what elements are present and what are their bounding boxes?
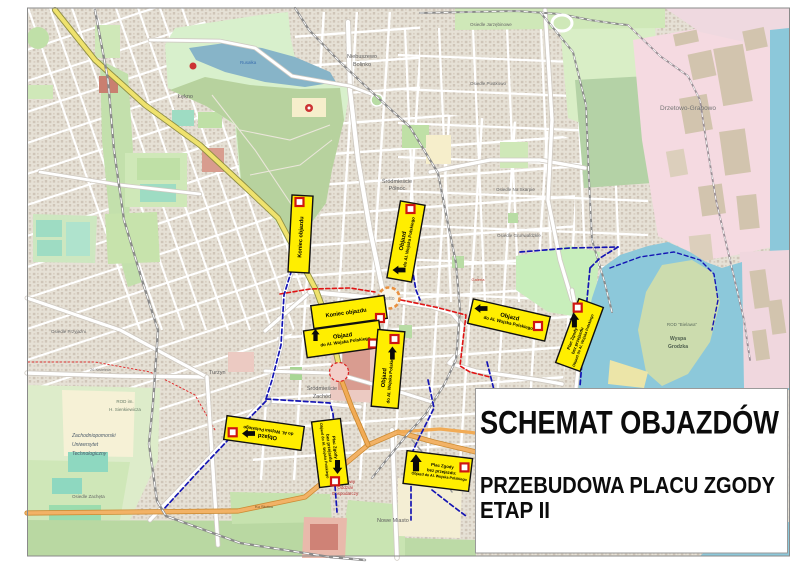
svg-text:Osiedle Zachęta: Osiedle Zachęta [72,494,105,499]
svg-text:Turzyn: Turzyn [209,370,226,376]
svg-text:Zachodniopomorski: Zachodniopomorski [71,433,117,439]
svg-text:Technologiczny: Technologiczny [72,451,107,457]
svg-text:Śródmieście: Śródmieście [382,177,412,185]
svg-text:Uniwersytet: Uniwersytet [72,442,99,448]
svg-text:Śródmieście: Śródmieście [307,384,337,392]
svg-text:Drzetowo-Grabowo: Drzetowo-Grabowo [660,105,716,112]
svg-text:Osiedle Jarzębinowe: Osiedle Jarzębinowe [470,22,512,27]
svg-text:PRZEBUDOWA PLACU ZGODY: PRZEBUDOWA PLACU ZGODY [480,472,775,498]
svg-text:Galeria: Galeria [472,277,486,282]
svg-text:Grodzka: Grodzka [668,344,688,350]
svg-text:Bolinko: Bolinko [353,62,371,68]
svg-text:Osiedle Przyjaźni: Osiedle Przyjaźni [51,329,86,334]
svg-text:Osiedle Pustkowo: Osiedle Pustkowo [470,81,507,86]
svg-text:ROD im.: ROD im. [116,399,133,404]
svg-text:ROD "Bielawa": ROD "Bielawa" [667,322,698,327]
svg-text:Osiedle Grunwaldzkie: Osiedle Grunwaldzkie [497,233,541,238]
svg-text:ETAP II: ETAP II [480,497,550,523]
svg-text:Nowe Miasto: Nowe Miasto [377,518,409,524]
svg-text:Ku Słońcu: Ku Słońcu [255,504,273,509]
svg-text:Wyspa: Wyspa [670,336,686,342]
svg-text:Północ: Północ [389,186,406,192]
svg-text:SCHEMAT OBJAZDÓW: SCHEMAT OBJAZDÓW [480,405,780,441]
svg-text:Zachód: Zachód [313,394,331,400]
svg-text:26 Kwietnia: 26 Kwietnia [90,367,111,372]
svg-text:Łękno: Łękno [178,94,193,100]
svg-text:Rusałka: Rusałka [240,60,257,65]
svg-text:Osiedle Na Skarpie: Osiedle Na Skarpie [496,187,535,192]
svg-text:H. Sienkiewicza: H. Sienkiewicza [109,407,141,412]
svg-text:Niebuszewo: Niebuszewo [347,54,377,60]
